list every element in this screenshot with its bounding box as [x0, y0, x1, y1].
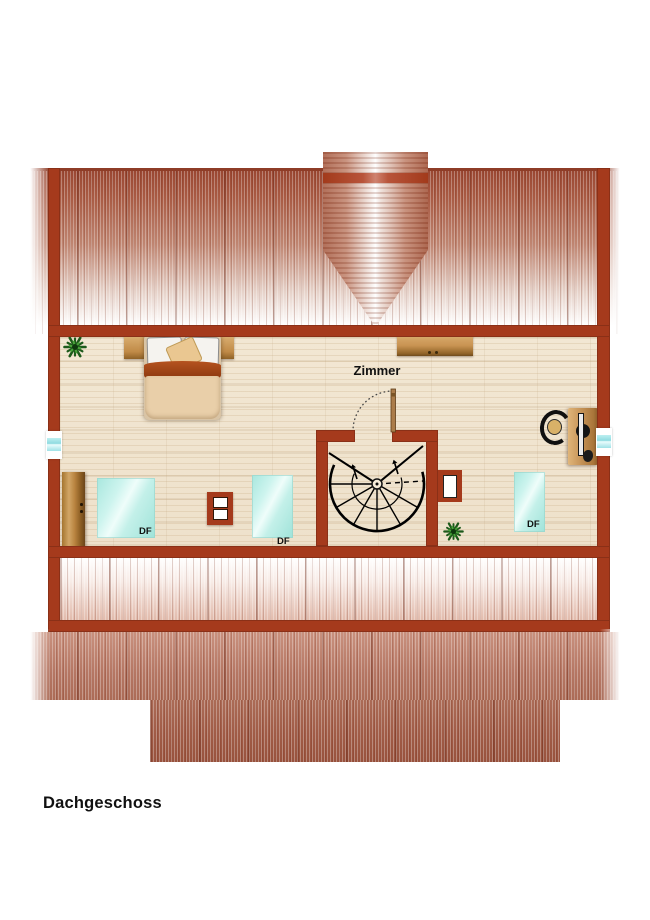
nightstand-left	[124, 335, 144, 359]
skylight-label: DF	[139, 527, 152, 537]
door-swing-icon	[340, 384, 402, 436]
roof-fade-right	[600, 629, 622, 700]
spiral-staircase-icon	[322, 442, 432, 548]
floorplan-canvas: DF DF DF	[0, 0, 650, 920]
bed-group	[124, 334, 236, 421]
shaft-vent	[213, 497, 228, 508]
wardrobe-knob	[80, 510, 83, 513]
wall-room-bottom	[48, 546, 610, 558]
skylight-label: DF	[527, 520, 540, 530]
roof-fade-left	[28, 168, 50, 334]
window-right	[596, 428, 612, 456]
window-glass	[597, 435, 611, 448]
roof-strip-inner	[60, 558, 597, 620]
shaft-vent	[213, 509, 228, 520]
wardrobe-knob	[80, 503, 83, 506]
wall-right	[597, 168, 610, 632]
plant-icon	[443, 521, 464, 542]
wall-niche	[438, 470, 462, 502]
chimney-roofline-band	[323, 173, 428, 183]
roof-fade-left	[28, 629, 50, 700]
office-chair-seat	[547, 419, 562, 435]
roof-area-bottom	[28, 632, 622, 700]
wall-bottom	[48, 620, 610, 632]
monitor-icon	[578, 413, 584, 456]
wall-top	[48, 325, 610, 337]
window-left	[46, 431, 62, 459]
roof-area-bottom-extension	[150, 700, 560, 762]
floor-title: Dachgeschoss	[43, 794, 162, 813]
plant-icon	[63, 335, 87, 359]
sideboard-knob	[435, 351, 438, 354]
wardrobe	[62, 472, 85, 547]
stair-enclosure-wall-right	[426, 430, 438, 546]
wall-left	[48, 168, 60, 632]
room-label: Zimmer	[340, 363, 414, 378]
niche-door	[443, 475, 457, 498]
skylight-2	[252, 475, 293, 538]
stair-enclosure-wall-left	[316, 430, 328, 546]
duvet	[145, 376, 220, 419]
window-glass	[47, 438, 61, 451]
chimney-shaft	[207, 492, 233, 525]
sideboard-knob	[428, 351, 431, 354]
double-bed	[144, 334, 221, 420]
